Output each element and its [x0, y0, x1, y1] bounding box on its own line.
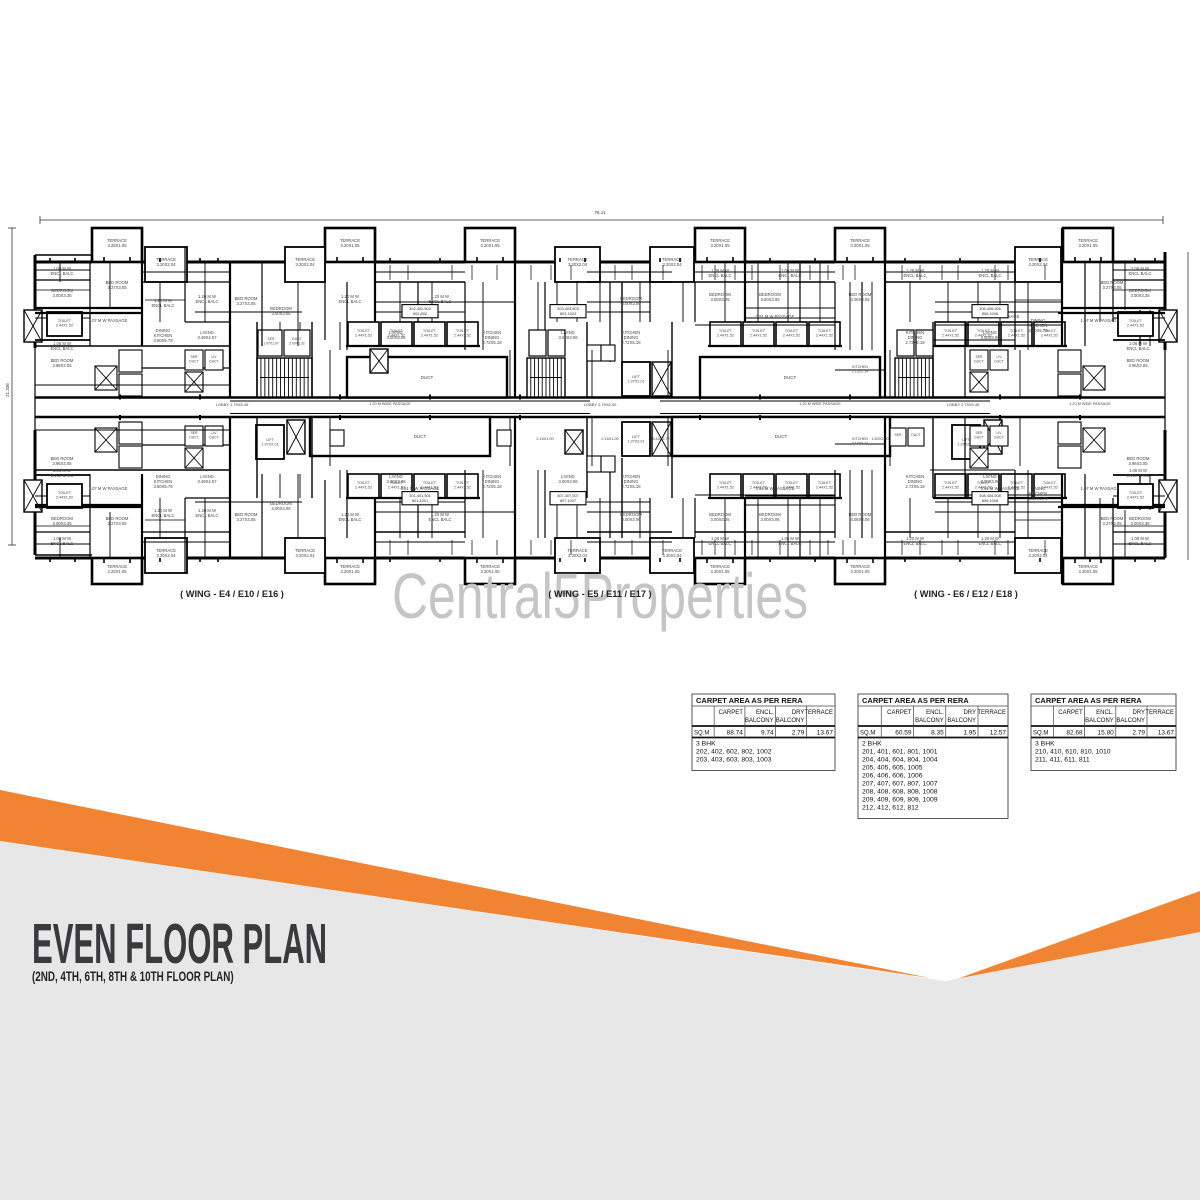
svg-text:TOILET2.44X1.52: TOILET2.44X1.52: [942, 481, 959, 490]
svg-text:21.336: 21.336: [5, 383, 10, 397]
svg-text:9.74: 9.74: [761, 730, 774, 737]
svg-text:1.08 M WENCL BALC: 1.08 M WENCL BALC: [1128, 266, 1151, 276]
svg-text:TOILET2.44X1.52: TOILET2.44X1.52: [1127, 491, 1144, 500]
svg-text:76.11: 76.11: [595, 210, 606, 215]
svg-text:SERDUCT: SERDUCT: [974, 431, 983, 439]
svg-text:CARPET AREA AS PER RERA: CARPET AREA AS PER RERA: [696, 696, 803, 705]
svg-text:205, 405, 605, 1005: 205, 405, 605, 1005: [862, 765, 923, 772]
svg-text:1.20 M WIDE PASSAGE: 1.20 M WIDE PASSAGE: [1069, 402, 1111, 406]
svg-text:1.95: 1.95: [963, 730, 976, 737]
svg-text:LOBBY 2.79X5.46: LOBBY 2.79X5.46: [216, 402, 249, 407]
svg-text:1.06 M WENCL BALC: 1.06 M WENCL BALC: [50, 341, 73, 351]
svg-text:3 BHK: 3 BHK: [696, 741, 716, 748]
svg-text:DININGKITCHEN3.60X5.79: DININGKITCHEN3.60X5.79: [1028, 486, 1048, 501]
svg-text:BEDROOM3.00X3.35: BEDROOM3.00X3.35: [1129, 288, 1151, 298]
svg-text:204, 404, 604, 804, 1004: 204, 404, 604, 804, 1004: [862, 757, 938, 764]
svg-text:206, 406, 606, 1006: 206, 406, 606, 1006: [862, 773, 923, 780]
svg-text:1.20 M WENCL BALC: 1.20 M WENCL BALC: [428, 512, 451, 522]
svg-text:BALCONY: BALCONY: [1085, 718, 1114, 724]
svg-text:1.20 M WIDE PASSAGE: 1.20 M WIDE PASSAGE: [799, 402, 841, 406]
svg-text:BALCONY: BALCONY: [745, 718, 774, 724]
svg-text:0.91 M W PASSAGE: 0.91 M W PASSAGE: [756, 486, 795, 491]
svg-text:SQ.M: SQ.M: [860, 731, 875, 737]
svg-text:TERRACE: TERRACE: [804, 710, 833, 716]
svg-text:DRY: DRY: [963, 710, 976, 716]
svg-text:1.06 M WENCL BALC: 1.06 M WENCL BALC: [50, 468, 73, 478]
svg-text:BED ROOM3.96X3.05: BED ROOM3.96X3.05: [1127, 456, 1150, 466]
svg-text:12.57: 12.57: [990, 730, 1007, 737]
svg-text:LIVING3.49X4.57: LIVING3.49X4.57: [197, 330, 217, 340]
svg-text:TERRACE3.20X1.05: TERRACE3.20X1.05: [340, 238, 360, 248]
svg-text:TOILET2.44X1.52: TOILET2.44X1.52: [355, 481, 372, 490]
svg-text:BALCONY: BALCONY: [915, 718, 944, 724]
svg-text:TOILET2.44X1.52: TOILET2.44X1.52: [454, 481, 471, 490]
svg-text:BED ROOM3.27X3.05: BED ROOM3.27X3.05: [106, 280, 129, 290]
svg-text:0.91 M W PASSAGE: 0.91 M W PASSAGE: [401, 486, 440, 491]
svg-text:DUCT: DUCT: [421, 375, 434, 380]
svg-text:208, 408, 608, 808, 1008: 208, 408, 608, 808, 1008: [862, 789, 938, 796]
svg-text:TOILET2.44X1.52: TOILET2.44X1.52: [717, 329, 734, 338]
svg-text:TERRACE3.20X2.04: TERRACE3.20X2.04: [156, 548, 176, 558]
svg-text:BED ROOM3.27X3.05: BED ROOM3.27X3.05: [1101, 516, 1124, 526]
svg-text:SQ.M: SQ.M: [694, 731, 709, 737]
svg-text:BEDROOM3.00X3.06: BEDROOM3.00X3.06: [709, 512, 731, 522]
svg-text:82.68: 82.68: [1066, 730, 1083, 737]
svg-text:BED ROOM3.96X3.05: BED ROOM3.96X3.05: [1127, 358, 1150, 368]
svg-text:1.07 M W PASSAGE: 1.07 M W PASSAGE: [89, 318, 128, 323]
svg-text:TOILET2.44X1.52: TOILET2.44X1.52: [1127, 319, 1144, 328]
svg-text:( WING - E6 / E12 / E18 ): ( WING - E6 / E12 / E18 ): [914, 589, 1018, 599]
svg-text:BEDROOM3.00X3.35: BEDROOM3.00X3.35: [51, 288, 73, 298]
svg-text:TOILET2.44X1.52: TOILET2.44X1.52: [454, 329, 471, 338]
svg-text:KITCHENDINING2.72X5.18: KITCHENDINING2.72X5.18: [482, 474, 502, 489]
svg-text:BEDROOM3.00X3.06: BEDROOM3.00X3.06: [620, 296, 642, 306]
svg-text:CARPET: CARPET: [887, 710, 912, 716]
svg-text:TERRACE3.20X1.05: TERRACE3.20X1.05: [850, 238, 870, 248]
svg-text:1.20 M WENCL BALC: 1.20 M WENCL BALC: [428, 294, 451, 304]
svg-text:BALCONY: BALCONY: [1116, 718, 1145, 724]
svg-text:TERRACE: TERRACE: [1145, 710, 1174, 716]
svg-text:207, 407, 607, 807, 1007: 207, 407, 607, 807, 1007: [862, 781, 938, 788]
svg-text:KITCHENDINING2.72X5.18: KITCHENDINING2.72X5.18: [905, 330, 925, 345]
svg-text:ENCL.: ENCL.: [1096, 710, 1114, 716]
svg-text:SQ.M: SQ.M: [1033, 731, 1048, 737]
svg-text:LIVING3.49X4.57: LIVING3.49X4.57: [197, 474, 217, 484]
svg-text:1.50X2.00: 1.50X2.00: [871, 437, 888, 441]
svg-text:2 BHK: 2 BHK: [862, 741, 882, 748]
svg-text:1.08 M WENCL BALC: 1.08 M WENCL BALC: [50, 536, 73, 546]
svg-text:TOILET2.44X1.52: TOILET2.44X1.52: [783, 329, 800, 338]
svg-text:SERDUCT: SERDUCT: [974, 355, 983, 363]
svg-text:BEDROOM3.00X3.06: BEDROOM3.00X3.06: [709, 292, 731, 302]
svg-text:211, 411, 611, 811: 211, 411, 611, 811: [1035, 757, 1090, 764]
svg-text:TOILET2.44X1.52: TOILET2.44X1.52: [421, 329, 438, 338]
svg-text:TERRACE3.20X1.05: TERRACE3.20X1.05: [340, 564, 360, 574]
svg-text:TOILET2.44X1.52: TOILET2.44X1.52: [1008, 329, 1025, 338]
svg-text:3 BHK: 3 BHK: [1035, 741, 1055, 748]
svg-text:203, 403, 603, 803, 1003: 203, 403, 603, 803, 1003: [696, 757, 772, 764]
svg-text:1.20 M WENCL BALC: 1.20 M WENCL BALC: [151, 298, 174, 308]
svg-text:TERRACE3.20X2.04: TERRACE3.20X2.04: [662, 257, 682, 267]
svg-text:1.06 M WENCL BALC: 1.06 M WENCL BALC: [708, 536, 731, 546]
svg-text:1.06 M WENCL BALC: 1.06 M WENCL BALC: [708, 268, 731, 278]
svg-text:TERRACE3.20X2.04: TERRACE3.20X2.04: [662, 548, 682, 558]
svg-text:1.20 M WENCL BALC: 1.20 M WENCL BALC: [151, 508, 174, 518]
svg-text:2.16X1.00: 2.16X1.00: [536, 437, 553, 441]
svg-text:BED ROOM3.27X3.05: BED ROOM3.27X3.05: [235, 512, 258, 522]
svg-text:1.07 M W PASSAGE: 1.07 M W PASSAGE: [89, 486, 128, 491]
svg-text:LIVING3.00X3.06: LIVING3.00X3.06: [558, 474, 578, 484]
svg-text:201, 401, 601, 801, 1001: 201, 401, 601, 801, 1001: [862, 749, 938, 756]
svg-text:CARPET: CARPET: [719, 710, 744, 716]
svg-text:303,403,503803,1003: 303,403,503803,1003: [557, 306, 579, 316]
svg-text:308,408,508808,1008: 308,408,508808,1008: [979, 493, 1001, 503]
svg-text:212, 412, 612, 812: 212, 412, 612, 812: [862, 805, 919, 812]
svg-text:1.06 M WENCL BALC: 1.06 M WENCL BALC: [778, 268, 801, 278]
svg-text:TERRACE3.20X2.04: TERRACE3.20X2.04: [156, 257, 176, 267]
svg-text:TOILET2.44X1.52: TOILET2.44X1.52: [816, 481, 833, 490]
svg-text:13.67: 13.67: [1158, 730, 1175, 737]
svg-text:202, 402, 602, 802, 1002: 202, 402, 602, 802, 1002: [696, 749, 772, 756]
svg-text:BED ROOM3.27X3.05: BED ROOM3.27X3.05: [106, 516, 129, 526]
svg-text:BED ROOM3.27X3.05: BED ROOM3.27X3.05: [235, 296, 258, 306]
svg-text:SERDUCT: SERDUCT: [189, 431, 198, 439]
svg-text:BEDROOM3.00X3.06: BEDROOM3.00X3.06: [759, 292, 781, 302]
svg-text:TERRACE3.20X1.05: TERRACE3.20X1.05: [1078, 564, 1098, 574]
svg-text:LOBBY 2.79X5.46: LOBBY 2.79X5.46: [947, 402, 980, 407]
svg-text:TERRACE3.20X2.04: TERRACE3.20X2.04: [295, 548, 315, 558]
svg-text:TERRACE3.20X2.04: TERRACE3.20X2.04: [567, 548, 587, 558]
svg-text:BED ROOM3.27X3.05: BED ROOM3.27X3.05: [1101, 280, 1124, 290]
svg-text:(2ND, 4TH, 6TH, 8TH & 10TH FLO: (2ND, 4TH, 6TH, 8TH & 10TH FLOOR PLAN): [32, 968, 234, 984]
svg-text:CARPET AREA AS PER RERA: CARPET AREA AS PER RERA: [1035, 696, 1142, 705]
svg-text:CARPET AREA AS PER RERA: CARPET AREA AS PER RERA: [862, 696, 969, 705]
svg-text:TOILET2.44X1.52: TOILET2.44X1.52: [816, 329, 833, 338]
svg-text:KITCHENDINING2.72X5.18: KITCHENDINING2.72X5.18: [621, 474, 641, 489]
svg-text:BEDROOM3.00X3.35: BEDROOM3.00X3.35: [1129, 516, 1151, 526]
svg-text:TERRACE3.20X1.05: TERRACE3.20X1.05: [850, 564, 870, 574]
svg-text:1.20 M WENCL BALC: 1.20 M WENCL BALC: [978, 268, 1001, 278]
svg-text:BEDROOM3.00X3.06: BEDROOM3.00X3.06: [759, 512, 781, 522]
svg-text:13.44X2.72: 13.44X2.72: [650, 437, 669, 441]
svg-text:1.06 M WENCL BALC: 1.06 M WENCL BALC: [1126, 341, 1149, 351]
svg-text:DRY: DRY: [1132, 710, 1145, 716]
svg-text:TERRACE3.20X1.05: TERRACE3.20X1.05: [710, 238, 730, 248]
svg-text:1.08 M WENCL BALC: 1.08 M WENCL BALC: [1128, 536, 1151, 546]
svg-text:TERRACE: TERRACE: [977, 710, 1006, 716]
svg-text:ENCL.: ENCL.: [926, 710, 944, 716]
svg-text:TERRACE3.20X1.05: TERRACE3.20X1.05: [107, 238, 127, 248]
svg-text:TOILET2.44X1.52: TOILET2.44X1.52: [942, 329, 959, 338]
svg-text:13.67: 13.67: [817, 730, 834, 737]
svg-text:TOILET2.44X1.52: TOILET2.44X1.52: [750, 329, 767, 338]
svg-text:1.20 M WENCL BALC: 1.20 M WENCL BALC: [903, 268, 926, 278]
svg-text:SERDUCT: SERDUCT: [189, 355, 198, 363]
svg-text:306,406,506806,1006: 306,406,506806,1006: [979, 306, 1001, 316]
svg-text:TOILET2.44X1.52: TOILET2.44X1.52: [717, 481, 734, 490]
svg-text:209, 409, 609, 809, 1009: 209, 409, 609, 809, 1009: [862, 797, 938, 804]
svg-text:( WING - E4 / E10 / E16 ): ( WING - E4 / E10 / E16 ): [180, 589, 284, 599]
svg-text:SER: SER: [895, 433, 903, 437]
svg-text:1.20 M WENCL BALC: 1.20 M WENCL BALC: [195, 294, 218, 304]
svg-text:LIVING3.00X3.06: LIVING3.00X3.06: [558, 330, 578, 340]
svg-text:TERRACE3.20X2.04: TERRACE3.20X2.04: [295, 257, 315, 267]
svg-text:1.06 M WENCL BALC: 1.06 M WENCL BALC: [1126, 468, 1149, 478]
svg-text:88.74: 88.74: [727, 730, 744, 737]
svg-text:0.91 M W PASSAGE: 0.91 M W PASSAGE: [981, 486, 1020, 491]
svg-text:KITCHENDINING2.72X5.18: KITCHENDINING2.72X5.18: [482, 330, 502, 345]
svg-text:BALCONY: BALCONY: [776, 718, 805, 724]
svg-text:TERRACE3.20X1.05: TERRACE3.20X1.05: [480, 238, 500, 248]
svg-text:BEDROOM3.00X3.06: BEDROOM3.00X3.06: [270, 306, 292, 316]
svg-text:DININGKITCHEN3.60X5.79: DININGKITCHEN3.60X5.79: [153, 474, 173, 489]
svg-text:ENCL.: ENCL.: [756, 710, 774, 716]
svg-text:TERRACE3.20X1.05: TERRACE3.20X1.05: [107, 564, 127, 574]
svg-text:BED ROOM4.06X3.06: BED ROOM4.06X3.06: [849, 512, 872, 522]
svg-text:1.06 M WENCL BALC: 1.06 M WENCL BALC: [778, 536, 801, 546]
svg-text:LOBBY 2.79X6.40: LOBBY 2.79X6.40: [584, 402, 617, 407]
svg-text:15.80: 15.80: [1098, 730, 1115, 737]
svg-text:KITCHENDINING2.72X5.18: KITCHENDINING2.72X5.18: [621, 330, 641, 345]
svg-text:1.08 M WENCL BALC: 1.08 M WENCL BALC: [50, 266, 73, 276]
svg-text:DININGKITCHEN3.60X5.79: DININGKITCHEN3.60X5.79: [153, 328, 173, 343]
svg-text:DRY: DRY: [792, 710, 805, 716]
svg-text:301,401,501801,1001: 301,401,501801,1001: [409, 493, 431, 503]
svg-text:CARPET: CARPET: [1058, 710, 1083, 716]
svg-text:1.20 M WENCL BALC: 1.20 M WENCL BALC: [338, 512, 361, 522]
svg-text:0.91 M W PASSAGE: 0.91 M W PASSAGE: [756, 314, 795, 319]
svg-text:TOILET2.44X1.52: TOILET2.44X1.52: [355, 329, 372, 338]
svg-text:TOILET2.44X1.52: TOILET2.44X1.52: [56, 491, 73, 500]
svg-text:DUCT: DUCT: [784, 375, 797, 380]
svg-text:1.20 M WIDE PASSAGE: 1.20 M WIDE PASSAGE: [369, 402, 411, 406]
svg-text:BALCONY: BALCONY: [947, 718, 976, 724]
svg-text:TOILET2.44X1.52: TOILET2.44X1.52: [56, 319, 73, 328]
svg-text:1.20 M WENCL BALC: 1.20 M WENCL BALC: [978, 536, 1001, 546]
svg-text:307,407,507807,1007: 307,407,507807,1007: [557, 493, 579, 503]
svg-text:BEDROOM3.00X3.06: BEDROOM3.00X3.06: [270, 501, 292, 511]
svg-text:KITCHEN2.13X2.14: KITCHEN2.13X2.14: [852, 365, 868, 374]
svg-text:1.20 M WENCL BALC: 1.20 M WENCL BALC: [195, 508, 218, 518]
svg-text:TERRACE3.20X1.05: TERRACE3.20X1.05: [1078, 238, 1098, 248]
svg-text:2.79: 2.79: [1132, 730, 1145, 737]
svg-text:EVEN FLOOR PLAN: EVEN FLOOR PLAN: [32, 911, 327, 976]
svg-text:1.20 M WENCL BALC: 1.20 M WENCL BALC: [338, 294, 361, 304]
svg-text:BEDROOM3.00X3.35: BEDROOM3.00X3.35: [51, 516, 73, 526]
svg-text:BED ROOM4.06X3.06: BED ROOM4.06X3.06: [849, 292, 872, 302]
svg-text:BED ROOM3.96X3.05: BED ROOM3.96X3.05: [51, 358, 74, 368]
svg-text:2.16X1.00: 2.16X1.00: [601, 437, 618, 441]
svg-text:DUCT: DUCT: [414, 434, 427, 439]
svg-text:KITCHEN2.13X2.14: KITCHEN2.13X2.14: [852, 437, 868, 446]
svg-text:( WING - E5 / E11 / E17 ): ( WING - E5 / E11 / E17 ): [548, 589, 651, 599]
svg-text:1.20 M WENCL BALC: 1.20 M WENCL BALC: [903, 536, 926, 546]
svg-text:KITCHENDINING2.72X5.18: KITCHENDINING2.72X5.18: [905, 474, 925, 489]
svg-text:BEDROOM3.00X3.06: BEDROOM3.00X3.06: [620, 512, 642, 522]
svg-text:60.59: 60.59: [895, 730, 912, 737]
svg-text:BED ROOM3.96X3.05: BED ROOM3.96X3.05: [51, 456, 74, 466]
svg-text:DUCT: DUCT: [775, 434, 788, 439]
svg-text:DININGKITCHEN3.60X5.79: DININGKITCHEN3.60X5.79: [1028, 318, 1048, 333]
svg-text:8.35: 8.35: [931, 730, 944, 737]
svg-text:1.07 M W PASSAGE: 1.07 M W PASSAGE: [1081, 486, 1120, 491]
svg-text:1.07 M W PASSAGE: 1.07 M W PASSAGE: [1081, 318, 1120, 323]
svg-text:2.79: 2.79: [792, 730, 805, 737]
svg-text:DUCT: DUCT: [911, 433, 920, 437]
svg-text:210, 410, 610, 810, 1010: 210, 410, 610, 810, 1010: [1035, 749, 1111, 756]
